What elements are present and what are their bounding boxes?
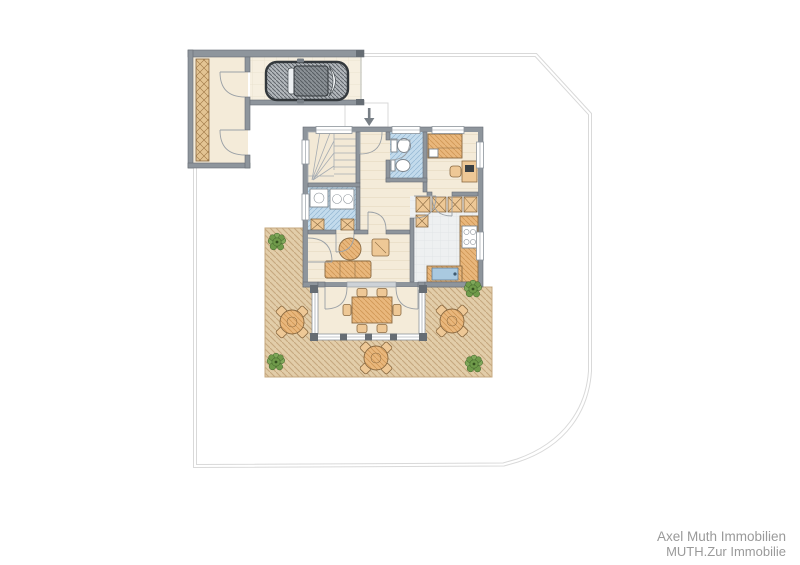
- sofa-icon: [325, 261, 371, 278]
- coffee-table-icon: [339, 238, 361, 260]
- desk-chair: [450, 166, 461, 177]
- toilet-icon: [391, 139, 411, 153]
- kitchen: [410, 196, 478, 282]
- staircase: [308, 132, 356, 183]
- watermark-line2: MUTH.Zur Immobilie: [657, 545, 786, 559]
- pillow: [429, 149, 438, 157]
- floor-plan-canvas: Axel Muth Immobilien MUTH.Zur Immobilie: [0, 0, 800, 565]
- storage-shelf: [196, 59, 209, 161]
- stove-icon: [462, 226, 477, 248]
- watermark-line1: Axel Muth Immobilien: [657, 530, 786, 545]
- floor-plan-svg: [0, 0, 800, 565]
- car-icon: [266, 59, 348, 104]
- sink-icon: [391, 160, 410, 172]
- watermark: Axel Muth Immobilien MUTH.Zur Immobilie: [657, 530, 786, 559]
- bathroom: [390, 132, 423, 178]
- entry-path: [345, 103, 388, 127]
- utility-room: [308, 187, 356, 230]
- double-sink-icon: [330, 189, 354, 209]
- washing-machine-icon: [310, 189, 328, 207]
